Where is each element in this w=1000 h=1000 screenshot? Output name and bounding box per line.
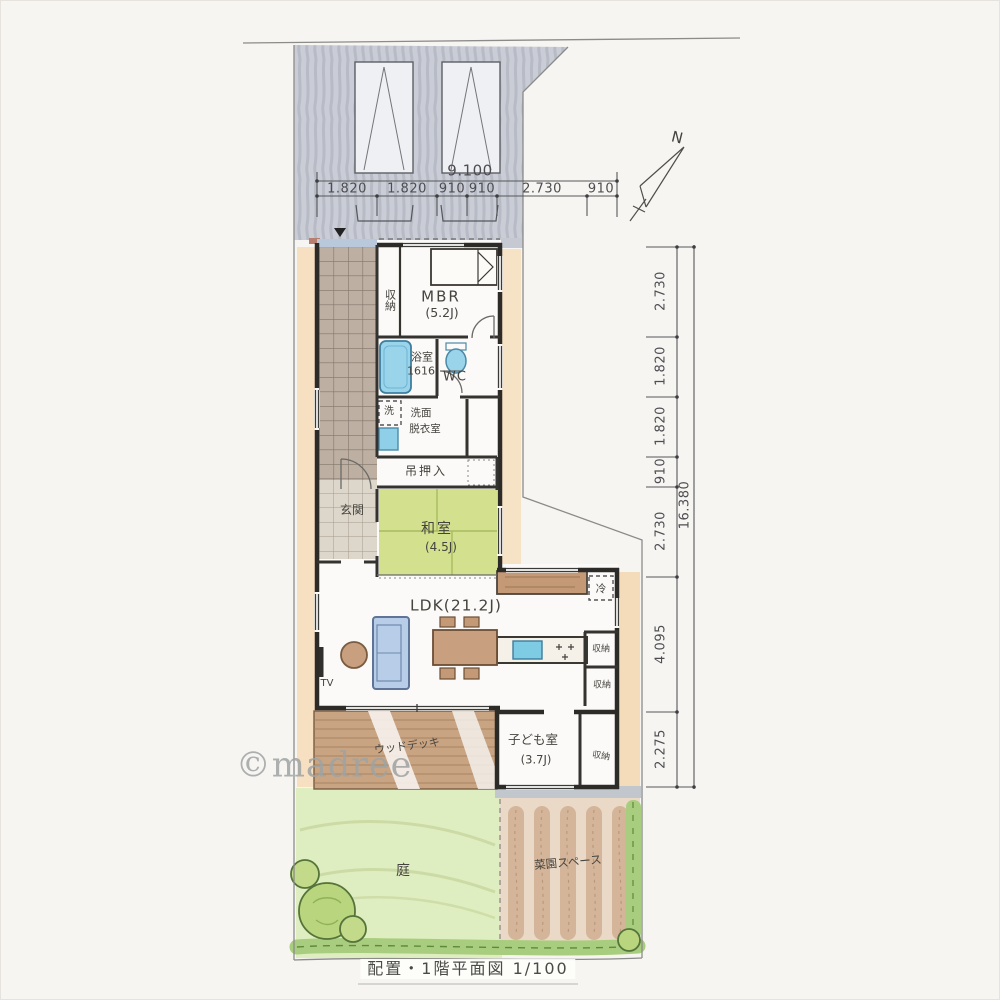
- dim-right-seg-2: 1.820: [655, 406, 668, 446]
- label-ldk: LDK(21.2J): [410, 598, 502, 614]
- dim-right-seg-3: 910: [655, 458, 668, 484]
- drawing-caption: 配置・1階平面図 1/100: [360, 959, 575, 979]
- dim-right-seg-0: 2.730: [655, 271, 668, 311]
- dim-top-seg-2: 910: [439, 183, 465, 196]
- bed: [431, 249, 497, 285]
- dim-right-seg-4: 2.730: [655, 511, 668, 551]
- plan-drawing: [0, 0, 1000, 1000]
- kitchen-island: [497, 637, 587, 663]
- dim-top-total: 9.100: [447, 164, 492, 179]
- floor-plan-sheet: 9.100 1.820 1.820 910 910 2.730 910 2.73…: [0, 0, 1000, 1000]
- dim-top-seg-1: 1.820: [387, 183, 427, 196]
- label-mbr-size: (5.2J): [425, 307, 458, 320]
- label-garden: 庭: [396, 864, 410, 878]
- round-table: [341, 642, 367, 668]
- label-laundry: 洗: [384, 407, 394, 417]
- watermark: ©madree: [236, 749, 413, 784]
- dim-right-seg-6: 2.275: [655, 729, 668, 769]
- vanity: [379, 428, 398, 450]
- label-storage-a: 収納: [592, 646, 610, 655]
- label-wc: WC: [443, 371, 467, 384]
- genkan-tile: [319, 480, 377, 559]
- dim-top-seg-3: 910: [469, 183, 495, 196]
- dim-right-total: 16.380: [679, 481, 692, 530]
- dim-top-seg-5: 910: [588, 183, 614, 196]
- label-kids-size: (3.7J): [521, 754, 552, 766]
- label-mbr: MBR: [421, 290, 461, 305]
- porch-tile: [319, 247, 377, 480]
- toilet: [446, 343, 466, 373]
- dining-table: [433, 630, 497, 665]
- porch-step: [317, 239, 377, 247]
- kitchen-counter: [497, 571, 587, 594]
- label-washitsu-size: (4.5J): [425, 541, 457, 553]
- label-washitsu: 和室: [421, 522, 453, 536]
- label-bath: 浴室: [411, 352, 433, 363]
- bush: [618, 929, 640, 951]
- label-bath-size: 1616: [407, 366, 435, 377]
- label-storage-b: 収納: [593, 682, 611, 691]
- label-washroom-2: 脱衣室: [409, 424, 441, 435]
- dim-right-seg-5: 4.095: [655, 624, 668, 664]
- label-fridge: 冷: [596, 584, 607, 595]
- dim-right-seg-1: 1.820: [655, 346, 668, 386]
- sofa: [373, 617, 409, 689]
- parking-area: [294, 45, 568, 248]
- label-genkan: 玄関: [340, 504, 364, 516]
- dim-top-seg-4: 2.730: [522, 183, 562, 196]
- label-oshiire: 吊押入: [405, 465, 447, 477]
- vegetable-garden: [500, 797, 640, 949]
- label-washroom-1: 洗面: [411, 408, 432, 419]
- label-kids: 子ども室: [508, 734, 558, 747]
- label-tv: TV: [321, 679, 334, 689]
- sink: [513, 641, 542, 659]
- parking-stall: [355, 62, 413, 173]
- label-mbr-closet: 収納: [385, 289, 396, 311]
- parking-stall: [442, 62, 500, 173]
- north-arrow-icon: [630, 147, 684, 221]
- dim-top-seg-0: 1.820: [327, 183, 367, 196]
